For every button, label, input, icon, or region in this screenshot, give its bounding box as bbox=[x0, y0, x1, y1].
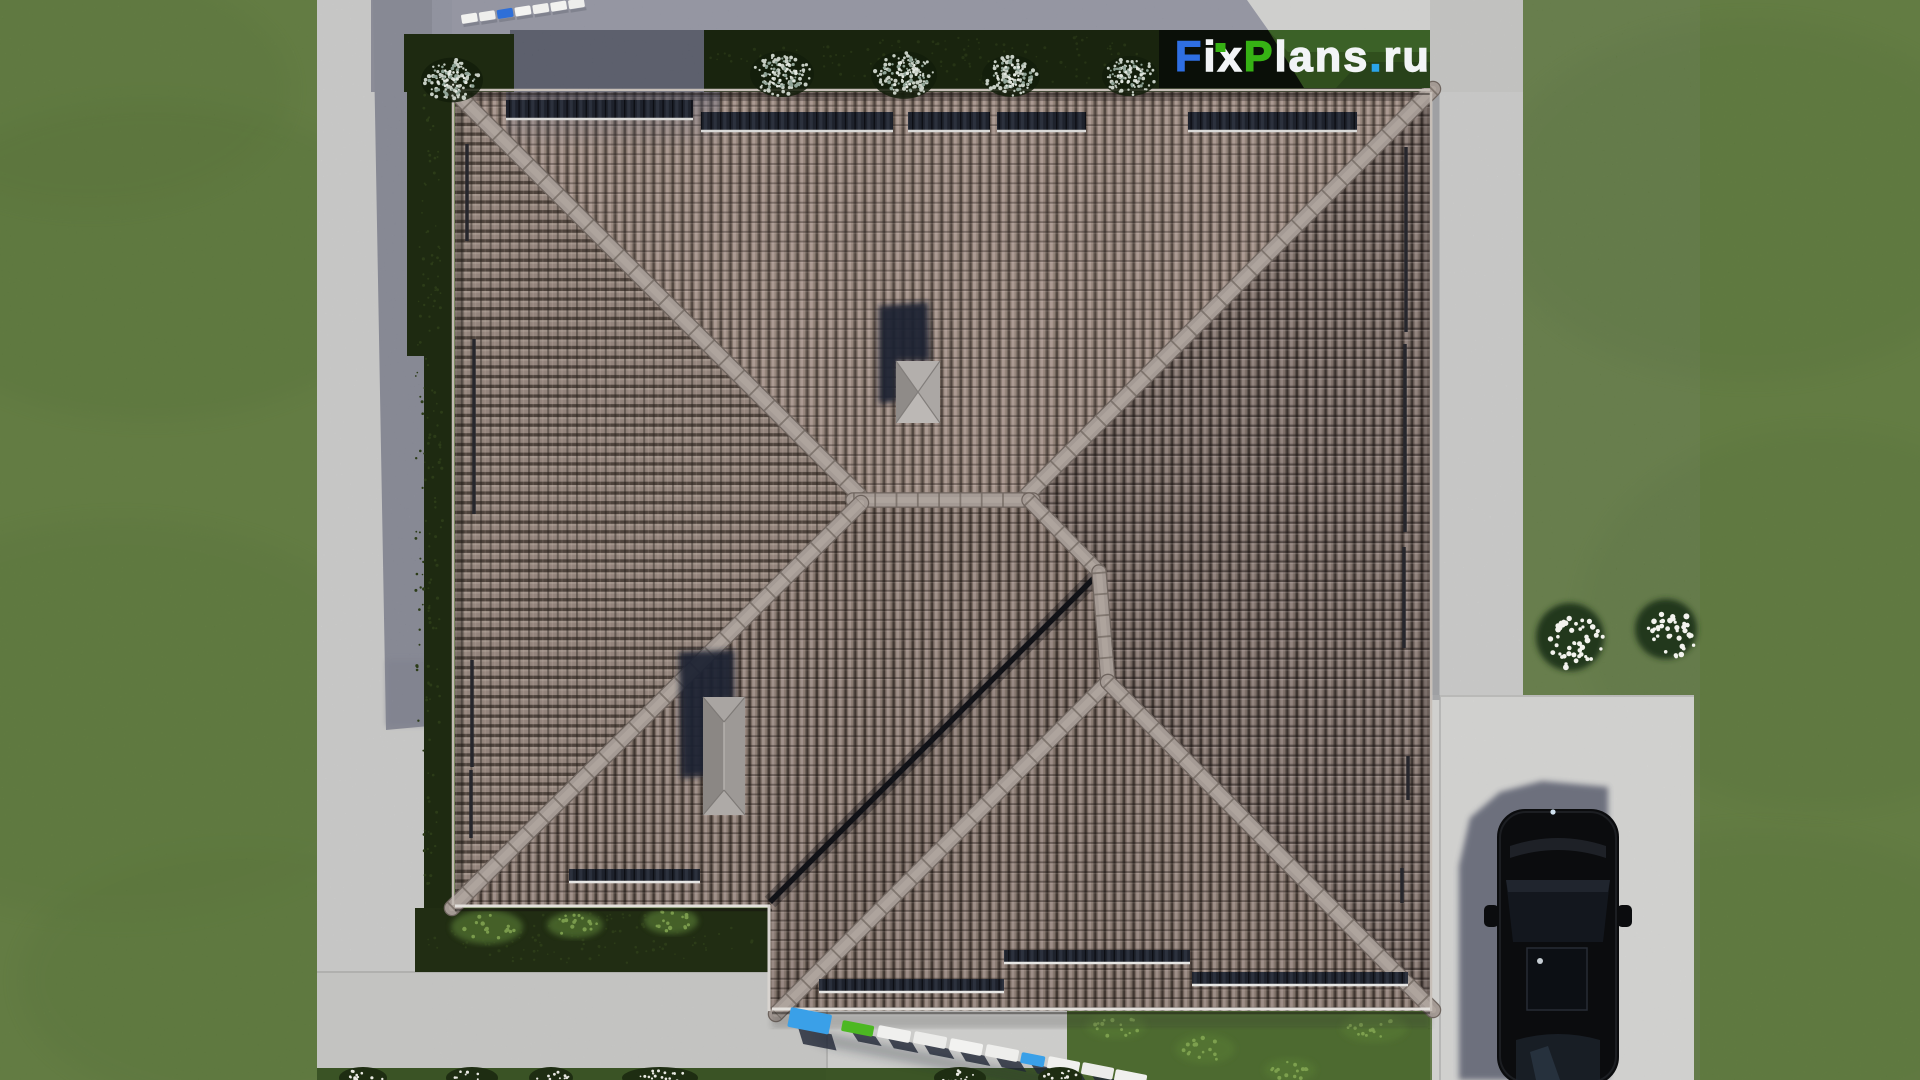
svg-text:FixPlans.ru: FixPlans.ru bbox=[1175, 33, 1431, 81]
